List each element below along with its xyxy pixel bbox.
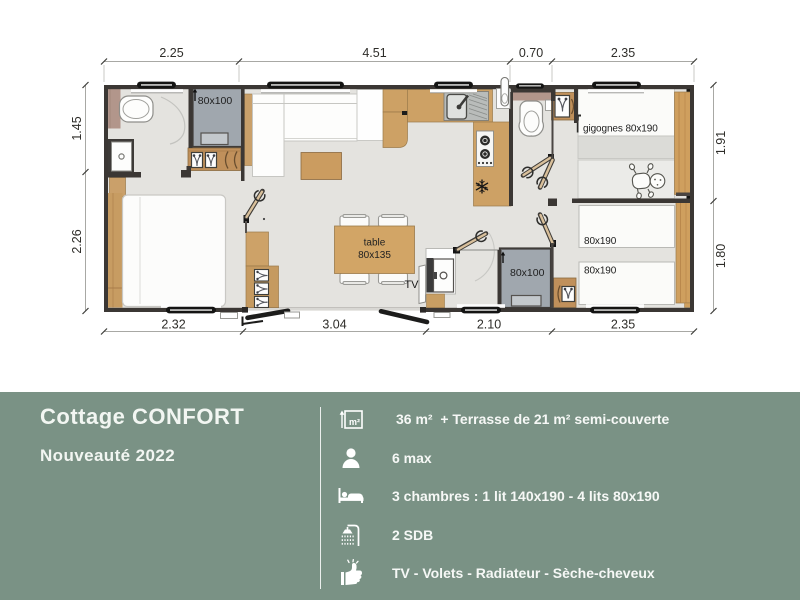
svg-text:80x100: 80x100 (510, 267, 545, 279)
svg-text:m²: m² (349, 417, 360, 427)
svg-text:4.51: 4.51 (362, 46, 386, 60)
svg-text:table: table (364, 238, 386, 249)
svg-text:80x190: 80x190 (584, 266, 617, 277)
svg-text:3.04: 3.04 (322, 318, 346, 332)
svg-text:2.35: 2.35 (611, 318, 635, 332)
svg-text:80x100: 80x100 (198, 95, 233, 107)
svg-text:2.35: 2.35 (611, 46, 635, 60)
svg-text:2.32: 2.32 (161, 318, 185, 332)
svg-text:2.26: 2.26 (70, 229, 84, 253)
svg-text:0.70: 0.70 (519, 46, 543, 60)
svg-text:1.91: 1.91 (714, 131, 728, 155)
svg-text:1.80: 1.80 (714, 244, 728, 268)
svg-text:80x190: 80x190 (584, 236, 617, 247)
svg-text:2.10: 2.10 (477, 318, 501, 332)
svg-text:1.45: 1.45 (70, 116, 84, 140)
svg-text:80x135: 80x135 (358, 250, 391, 261)
svg-text:gigognes 80x190: gigognes 80x190 (583, 124, 658, 135)
svg-text:2.25: 2.25 (159, 46, 183, 60)
svg-text:TV: TV (404, 279, 419, 291)
